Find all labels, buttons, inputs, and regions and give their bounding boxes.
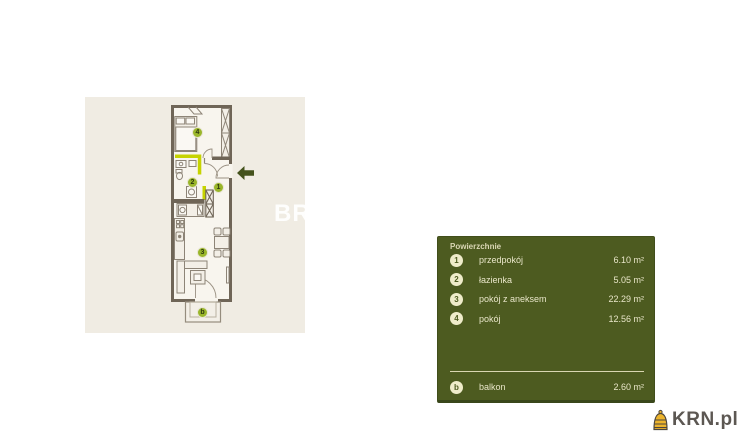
logo-text: KRN.pl [672, 409, 738, 431]
legend-row: 3 pokój z aneksem 22.29 m² [450, 289, 644, 309]
room-area-value: 2.60 m² [613, 382, 644, 392]
room-label: łazienka [479, 275, 512, 285]
room-number-badge: 4 [450, 312, 463, 325]
room-marker-4: 4 [192, 127, 203, 138]
room-number-badge: b [450, 381, 463, 394]
room-marker-3: 3 [197, 247, 208, 258]
room-marker-1: 1 [213, 182, 224, 193]
legend-row: 4 pokój 12.56 m² [450, 309, 644, 329]
legend-row-balcony: b balkon 2.60 m² [450, 377, 644, 397]
legend-row: 2 łazienka 5.05 m² [450, 270, 644, 290]
legend-divider [450, 371, 644, 372]
wardrobe [222, 109, 230, 158]
room-label: przedpokój [479, 255, 523, 265]
room-marker-balcony: b [197, 307, 208, 318]
legend-row: 1 przedpokój 6.10 m² [450, 250, 644, 270]
room-label: balkon [479, 382, 506, 392]
legend-panel: Powierzchnie 1 przedpokój 6.10 m² 2 łazi… [437, 236, 655, 403]
beehive-icon [652, 409, 669, 431]
entry-arrow-icon [237, 166, 254, 180]
room-area-value: 5.05 m² [613, 275, 644, 285]
room-label: pokój z aneksem [479, 294, 547, 304]
floor-plan-card: 4 2 1 3 b BR [85, 97, 305, 333]
room-number-badge: 1 [450, 254, 463, 267]
room-area-value: 12.56 m² [608, 314, 644, 324]
krn-logo: KRN.pl [652, 406, 738, 434]
watermark: BR [274, 200, 305, 228]
room-area-value: 6.10 m² [613, 255, 644, 265]
room-area-value: 22.29 m² [608, 294, 644, 304]
room-number-badge: 2 [450, 273, 463, 286]
room-label: pokój [479, 314, 501, 324]
room-marker-2: 2 [187, 177, 198, 188]
shaft [206, 190, 214, 217]
room-number-badge: 3 [450, 293, 463, 306]
page: 4 2 1 3 b BR Powierzchnie 1 przedpokój 6… [0, 0, 740, 443]
